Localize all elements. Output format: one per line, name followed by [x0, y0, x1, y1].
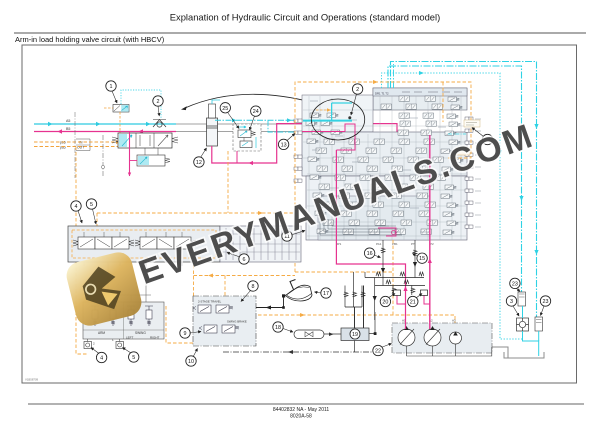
svg-text:PT: PT: [411, 242, 415, 246]
svg-text:3: 3: [510, 299, 513, 305]
svg-text:B5: B5: [66, 127, 70, 131]
svg-text:Explanation of Hydraulic Circu: Explanation of Hydraulic Circuit and Ope…: [170, 12, 440, 23]
svg-text:4: 4: [100, 356, 103, 362]
svg-text:13: 13: [281, 142, 287, 148]
svg-text:5: 5: [90, 202, 93, 208]
svg-text:24: 24: [253, 109, 259, 115]
svg-text:V1B58709: V1B58709: [25, 378, 39, 382]
svg-text:21: 21: [410, 300, 416, 306]
svg-text:5: 5: [132, 355, 135, 361]
svg-text:Arm-in load holding valve circ: Arm-in load holding valve circuit (with …: [15, 35, 165, 44]
svg-text:10: 10: [188, 359, 194, 365]
svg-text:18: 18: [275, 325, 281, 331]
svg-text:PA1: PA1: [376, 242, 382, 246]
svg-text:6: 6: [243, 257, 246, 263]
svg-text:SWING BRAKE: SWING BRAKE: [227, 320, 247, 324]
svg-text:19: 19: [352, 332, 358, 338]
svg-text:DR1 T1 T2: DR1 T1 T2: [375, 92, 389, 96]
svg-text:12: 12: [196, 160, 202, 166]
svg-text:9: 9: [184, 331, 187, 337]
svg-text:8: 8: [252, 284, 255, 290]
svg-text:17: 17: [323, 291, 329, 297]
svg-text:2: 2: [157, 99, 160, 105]
svg-text:22: 22: [375, 349, 381, 355]
svg-text:16: 16: [367, 251, 373, 257]
svg-text:2: 2: [93, 342, 95, 346]
svg-text:15: 15: [419, 256, 425, 262]
svg-text:LEFT: LEFT: [126, 336, 134, 340]
svg-text:RIGHT: RIGHT: [150, 336, 160, 340]
svg-text:23: 23: [543, 299, 549, 305]
svg-text:A5: A5: [66, 119, 70, 123]
svg-text:pb5: pb5: [60, 141, 66, 145]
svg-text:1: 1: [110, 84, 113, 90]
svg-text:ARM: ARM: [98, 331, 105, 335]
svg-text:23: 23: [512, 281, 518, 287]
svg-text:2-STAGE TRAVEL: 2-STAGE TRAVEL: [198, 300, 222, 304]
svg-text:25: 25: [222, 106, 228, 112]
svg-text:20: 20: [382, 300, 388, 306]
svg-text:8020A-58: 8020A-58: [290, 414, 312, 420]
svg-text:4: 4: [75, 204, 78, 210]
svg-text:84402832 NA - May 2011: 84402832 NA - May 2011: [273, 407, 330, 413]
svg-text:IN: IN: [79, 141, 83, 145]
svg-text:2: 2: [356, 87, 359, 93]
svg-text:P2: P2: [430, 242, 434, 246]
svg-text:SWING: SWING: [135, 331, 146, 335]
svg-text:A3: A3: [452, 319, 456, 323]
